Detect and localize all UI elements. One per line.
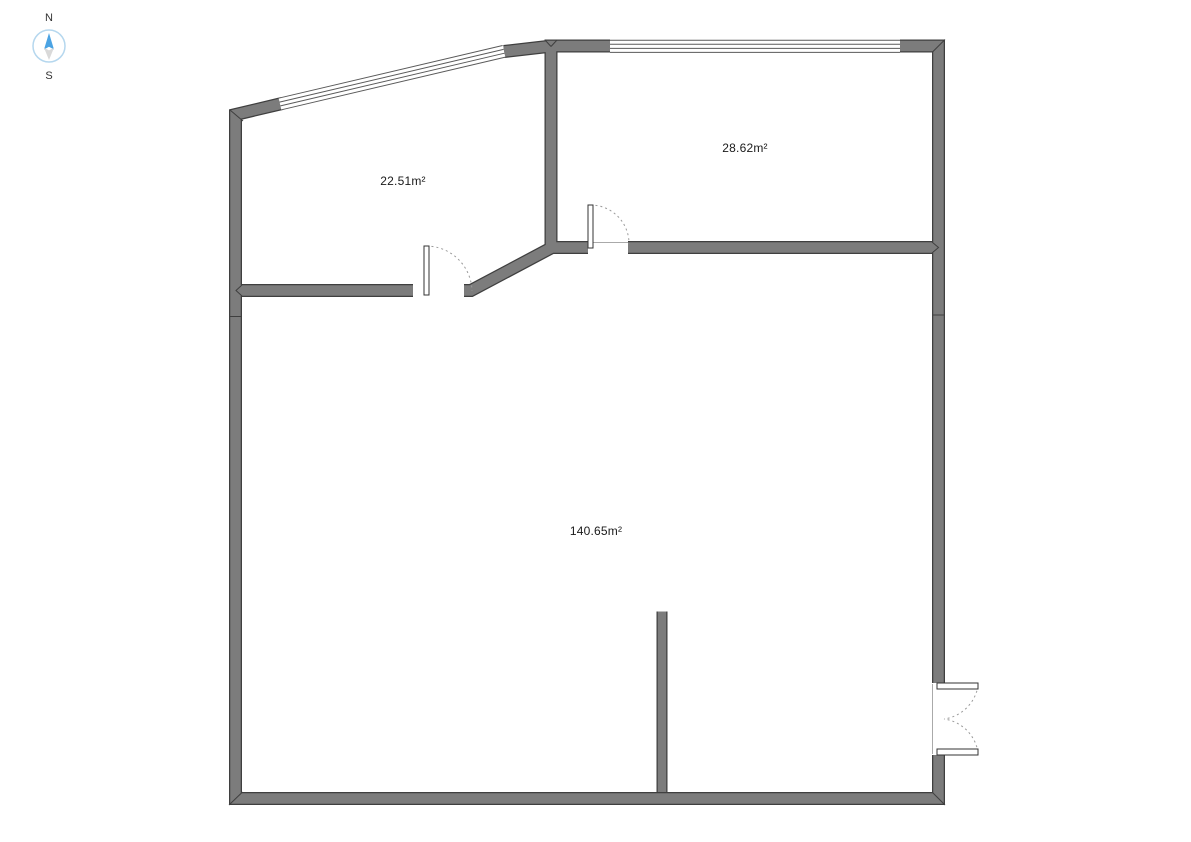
- compass: N S: [33, 12, 65, 82]
- door-room-northeast: [588, 205, 629, 248]
- window-northwest-slanted: [279, 45, 506, 110]
- room-area-label-main: 140.65m²: [570, 524, 622, 538]
- compass-south-label: S: [45, 70, 52, 82]
- double-door-east: [933, 683, 979, 755]
- room-area-label-northeast: 28.62m²: [722, 141, 767, 155]
- floor-plan-drawing: N S: [0, 0, 1191, 842]
- wall-joints: [229, 40, 945, 806]
- room-area-label-northwest: 22.51m²: [380, 174, 425, 188]
- walls: [229, 40, 945, 806]
- floor-plan-canvas: N S 22.51m² 28.62m² 140.65m²: [0, 0, 1191, 842]
- window-north: [610, 40, 900, 53]
- compass-north-label: N: [45, 12, 53, 24]
